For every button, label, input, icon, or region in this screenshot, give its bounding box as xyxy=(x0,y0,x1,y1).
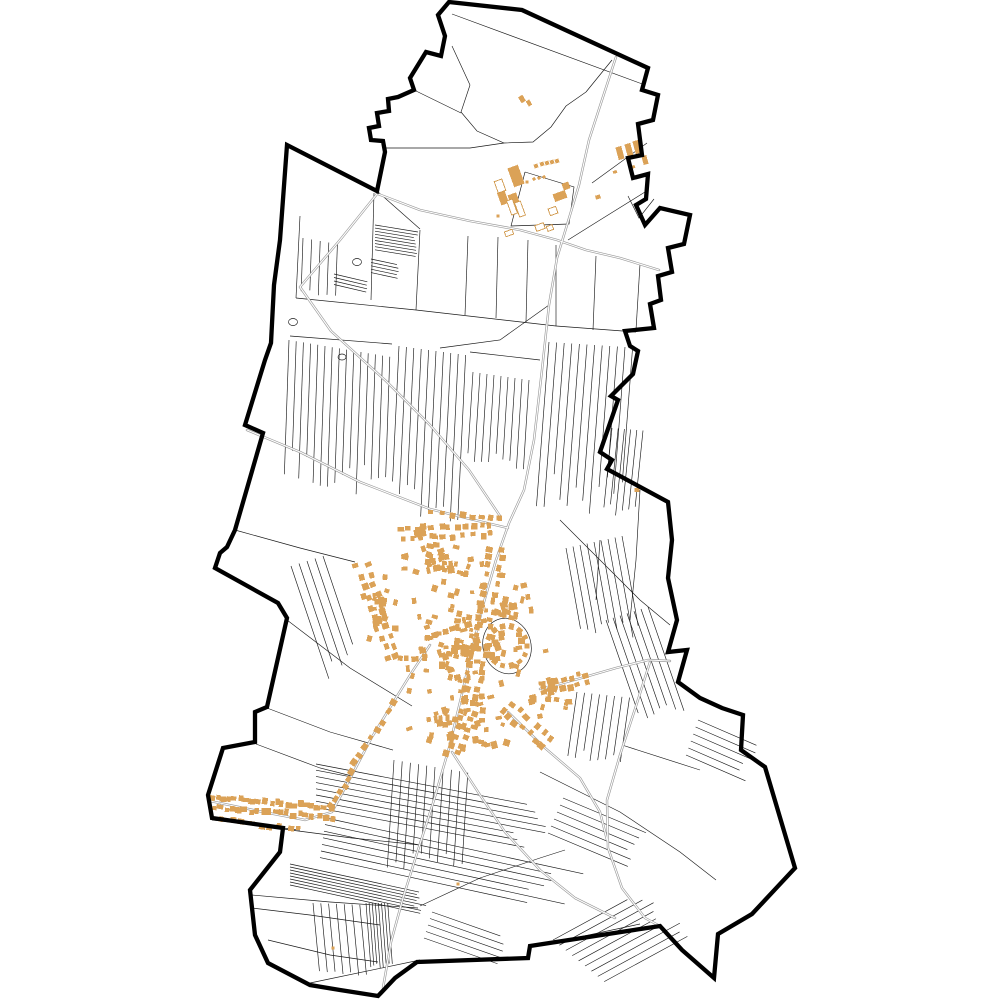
parcel-lines-layer xyxy=(212,14,756,983)
building-footprints-layer xyxy=(209,95,649,950)
cadastral-map xyxy=(0,0,1000,1000)
municipality-boundary xyxy=(208,2,795,996)
map-canvas xyxy=(0,0,1000,1000)
